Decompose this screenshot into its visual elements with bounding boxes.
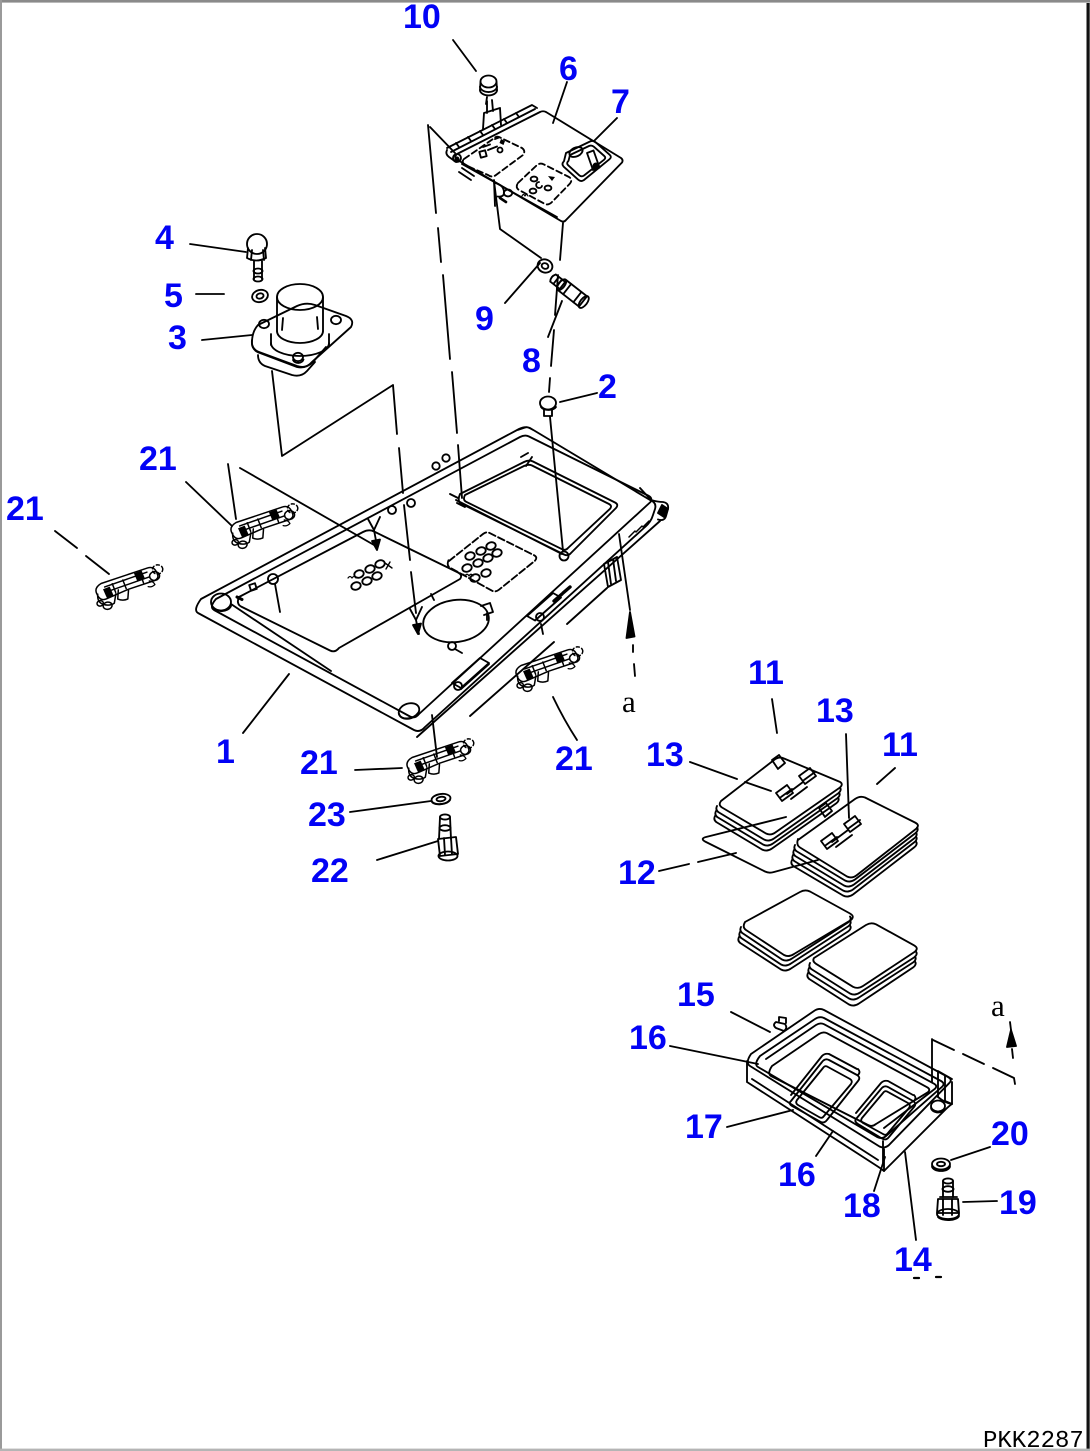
svg-text:9: 9 xyxy=(475,300,494,338)
svg-text:5: 5 xyxy=(164,277,183,315)
svg-text:23: 23 xyxy=(308,796,346,834)
svg-text:13: 13 xyxy=(646,736,684,774)
svg-text:17: 17 xyxy=(685,1108,723,1146)
svg-text:21: 21 xyxy=(300,744,338,782)
svg-text:10: 10 xyxy=(403,0,441,36)
svg-text:21: 21 xyxy=(555,740,593,778)
svg-text:7: 7 xyxy=(611,83,630,121)
svg-text:14: 14 xyxy=(894,1241,932,1279)
svg-text:8: 8 xyxy=(522,342,541,380)
svg-text:3: 3 xyxy=(168,319,187,357)
svg-text:a: a xyxy=(991,988,1005,1023)
svg-text:11: 11 xyxy=(748,654,784,692)
svg-text:15: 15 xyxy=(677,976,715,1014)
svg-text:PKK2287: PKK2287 xyxy=(983,1428,1084,1451)
svg-text:4: 4 xyxy=(155,219,174,257)
svg-text:2: 2 xyxy=(598,368,617,406)
svg-text:21: 21 xyxy=(6,490,44,528)
svg-text:12: 12 xyxy=(618,854,656,892)
svg-text:13: 13 xyxy=(816,692,854,730)
svg-text:19: 19 xyxy=(999,1184,1037,1222)
svg-text:22: 22 xyxy=(311,852,349,890)
svg-text:a: a xyxy=(622,684,636,719)
svg-text:20: 20 xyxy=(991,1115,1029,1153)
svg-text:1: 1 xyxy=(216,733,235,771)
svg-text:21: 21 xyxy=(139,440,177,478)
svg-text:16: 16 xyxy=(778,1156,816,1194)
svg-text:16: 16 xyxy=(629,1019,667,1057)
svg-text:6: 6 xyxy=(559,50,578,88)
svg-text:11: 11 xyxy=(882,726,918,764)
svg-text:18: 18 xyxy=(843,1187,881,1225)
